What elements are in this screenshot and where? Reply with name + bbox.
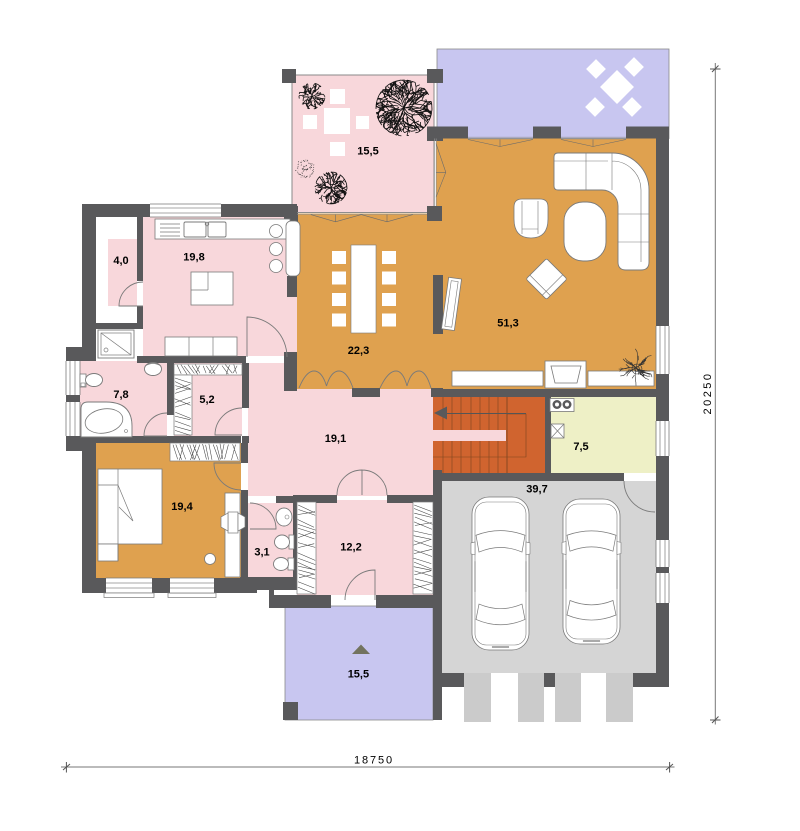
svg-text:15,5: 15,5 (357, 146, 378, 158)
svg-text:7,8: 7,8 (113, 389, 128, 401)
svg-text:22,3: 22,3 (348, 345, 369, 357)
svg-text:20250: 20250 (702, 371, 714, 414)
svg-text:19,8: 19,8 (183, 252, 204, 264)
svg-text:51,3: 51,3 (497, 318, 518, 330)
svg-text:4,0: 4,0 (113, 255, 128, 267)
svg-text:12,2: 12,2 (340, 542, 361, 554)
svg-text:7,5: 7,5 (573, 441, 588, 453)
svg-text:19,1: 19,1 (325, 433, 346, 445)
svg-text:15,5: 15,5 (348, 669, 369, 681)
svg-text:5,2: 5,2 (199, 394, 214, 406)
svg-text:18750: 18750 (354, 755, 394, 767)
svg-text:19,4: 19,4 (171, 501, 193, 513)
svg-text:3,1: 3,1 (254, 547, 269, 559)
svg-text:39,7: 39,7 (526, 484, 547, 496)
